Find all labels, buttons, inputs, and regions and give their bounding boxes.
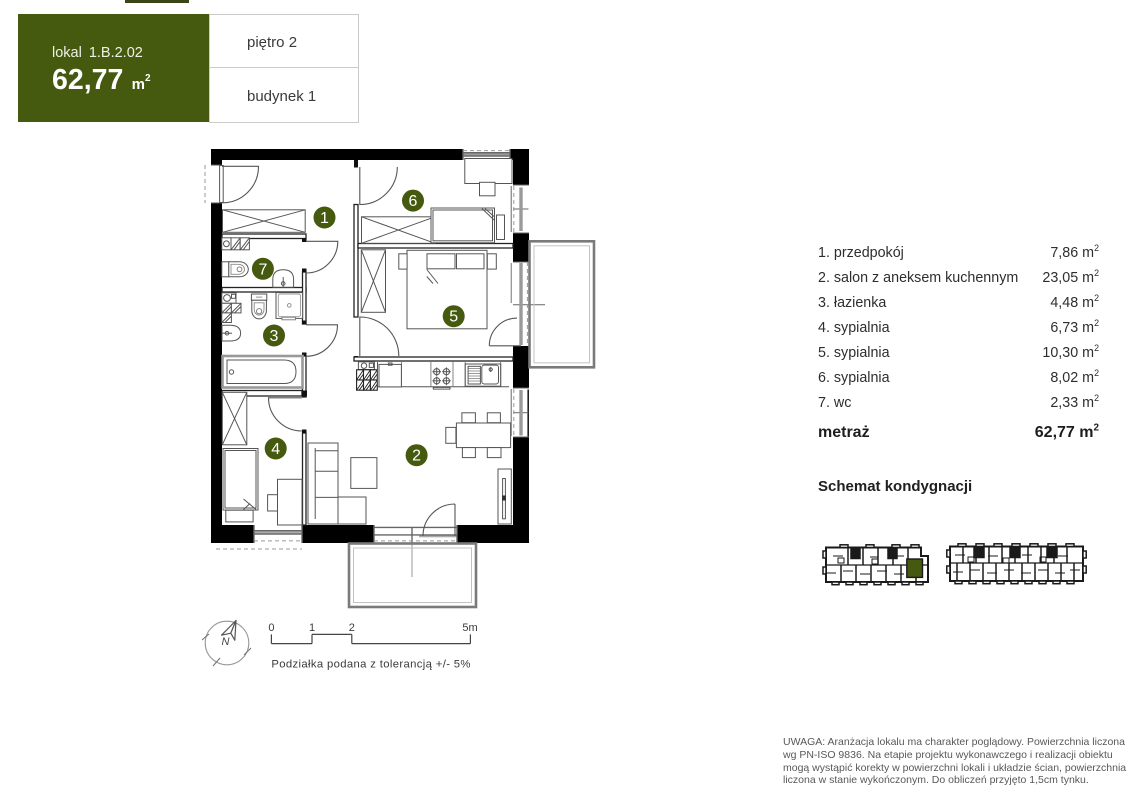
svg-text:N: N <box>222 636 230 648</box>
svg-text:Podziałka podana z tolerancją: Podziałka podana z tolerancją +/- 5% <box>271 659 470 671</box>
svg-text:1: 1 <box>309 622 315 634</box>
svg-text:1: 1 <box>320 210 329 227</box>
svg-text:5m: 5m <box>462 622 477 634</box>
svg-text:4: 4 <box>271 441 280 458</box>
svg-text:5: 5 <box>449 309 458 326</box>
svg-text:2: 2 <box>412 448 421 465</box>
svg-text:2: 2 <box>349 622 355 634</box>
svg-text:6: 6 <box>409 193 418 210</box>
svg-text:3: 3 <box>270 328 279 345</box>
svg-text:7: 7 <box>258 261 267 278</box>
svg-text:0: 0 <box>268 622 274 634</box>
